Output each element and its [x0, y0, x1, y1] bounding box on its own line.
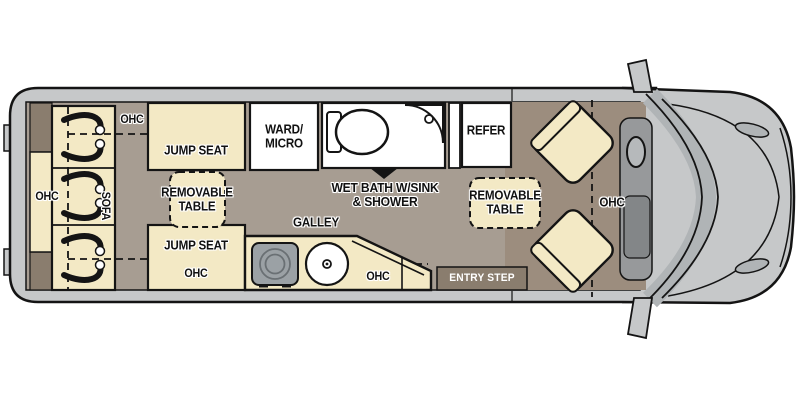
sink-icon	[306, 243, 348, 285]
cooktop-icon	[252, 243, 298, 288]
steering-wheel-icon	[627, 137, 645, 167]
jump-seat-front	[148, 103, 245, 170]
floorplan-graphic	[0, 0, 800, 400]
floorplan-diagram: OHC JUMP SEAT REMOVABLE TABLE JUMP SEAT …	[0, 0, 800, 400]
sofa-ohc-cabinet	[30, 152, 52, 252]
refrigerator	[462, 103, 511, 167]
entry-step	[437, 267, 527, 290]
jump-seat-rear	[148, 225, 245, 290]
wardrobe-microwave	[250, 103, 318, 170]
removable-table-left	[170, 172, 225, 227]
narrow-cabinet	[449, 103, 460, 168]
side-mirror-bottom-icon	[628, 298, 652, 338]
toilet-icon	[327, 110, 388, 154]
removable-table-right	[470, 178, 540, 228]
wet-bath	[322, 103, 445, 179]
